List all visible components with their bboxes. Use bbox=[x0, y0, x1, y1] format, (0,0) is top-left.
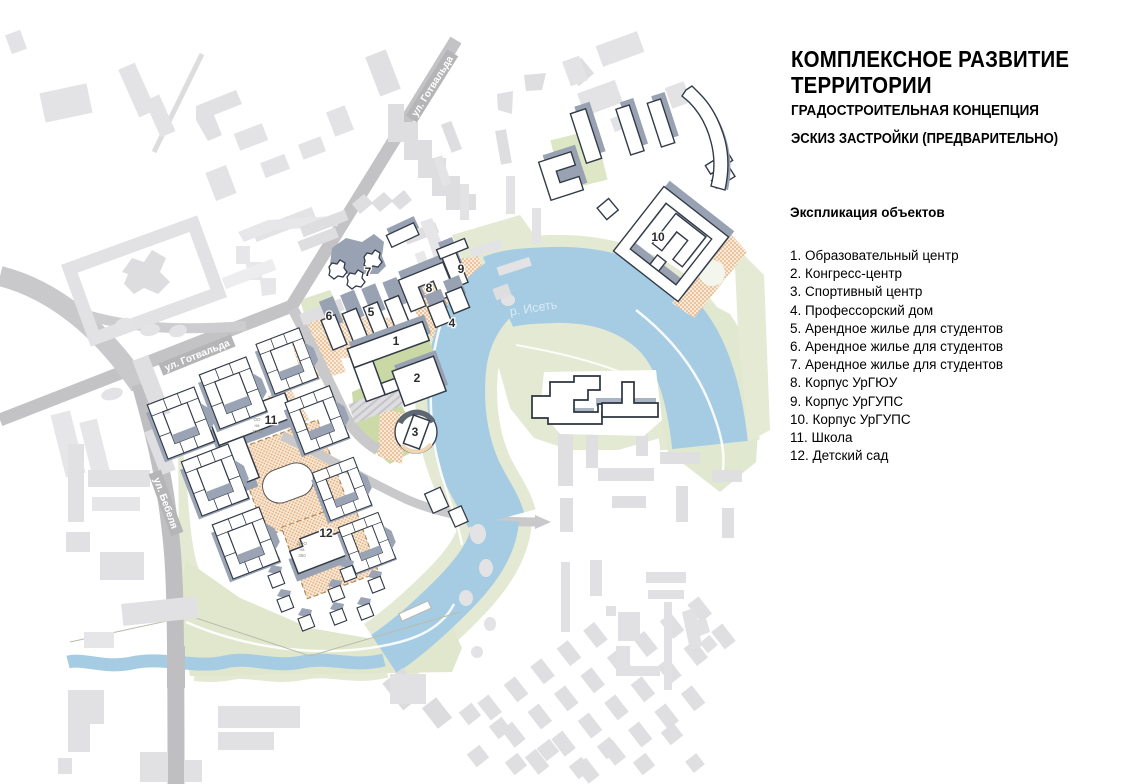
svg-text:10: 10 bbox=[651, 230, 665, 244]
svg-text:8: 8 bbox=[426, 281, 433, 295]
svg-text:1000: 1000 bbox=[252, 429, 263, 434]
svg-text:4: 4 bbox=[449, 316, 456, 330]
svg-text:1: 1 bbox=[393, 334, 400, 348]
svg-text:7: 7 bbox=[365, 265, 372, 279]
svg-text:11: 11 bbox=[265, 413, 278, 427]
svg-text:9: 9 bbox=[458, 262, 465, 276]
svg-text:5: 5 bbox=[368, 305, 375, 319]
svg-text:ул. Готвальда: ул. Готвальда bbox=[410, 54, 456, 119]
svg-text:на: на bbox=[300, 547, 305, 552]
svg-text:350: 350 bbox=[298, 553, 306, 558]
svg-text:ДОО: ДОО bbox=[297, 541, 308, 546]
svg-text:12: 12 bbox=[319, 526, 333, 540]
svg-text:3: 3 bbox=[412, 425, 419, 439]
svg-text:ОО: ОО bbox=[253, 417, 261, 422]
svg-text:на: на bbox=[255, 423, 260, 428]
svg-text:6: 6 bbox=[326, 309, 333, 323]
svg-text:2: 2 bbox=[414, 371, 421, 385]
